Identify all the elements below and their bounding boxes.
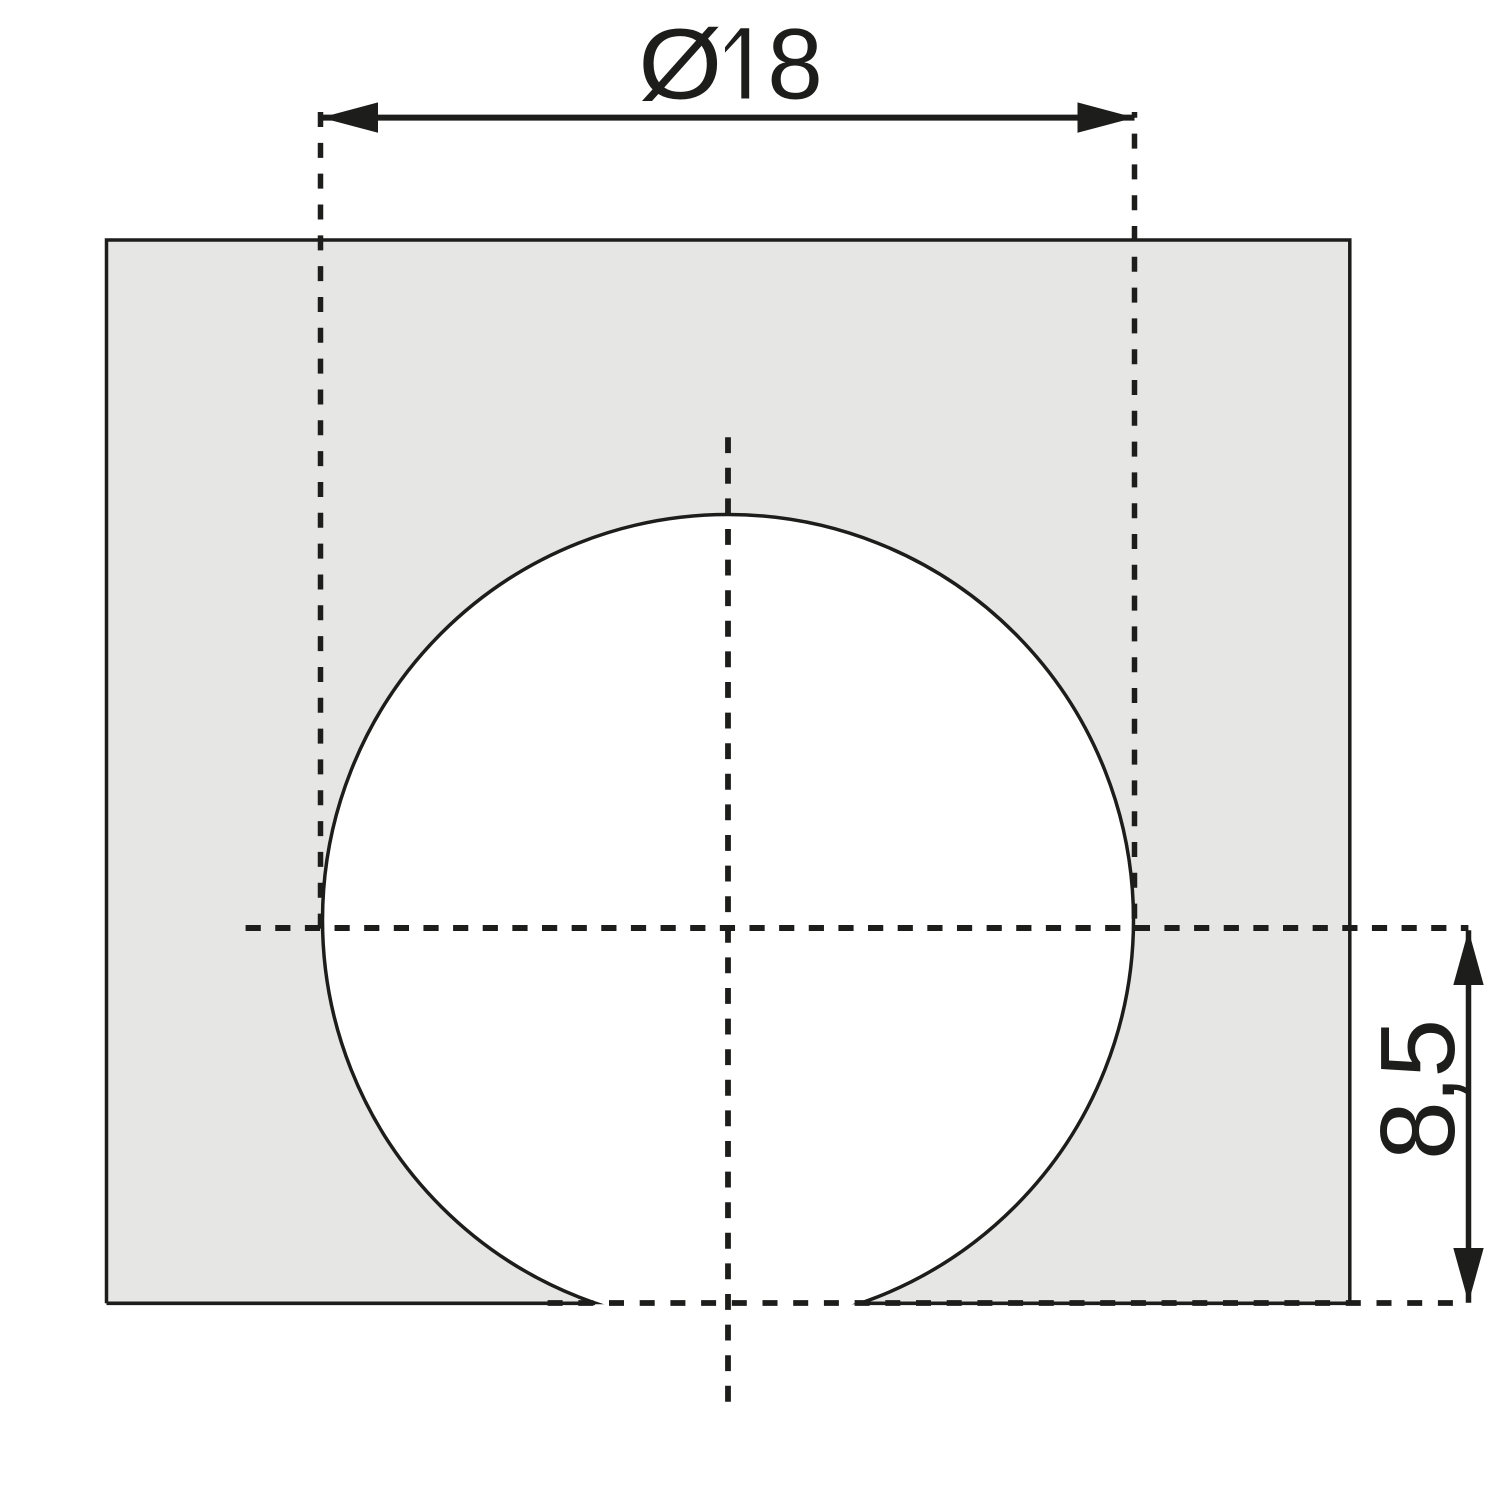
svg-text:8: 8 bbox=[767, 9, 823, 121]
svg-text:Ø: Ø bbox=[638, 9, 722, 120]
svg-text:8,5: 8,5 bbox=[1359, 1022, 1477, 1160]
